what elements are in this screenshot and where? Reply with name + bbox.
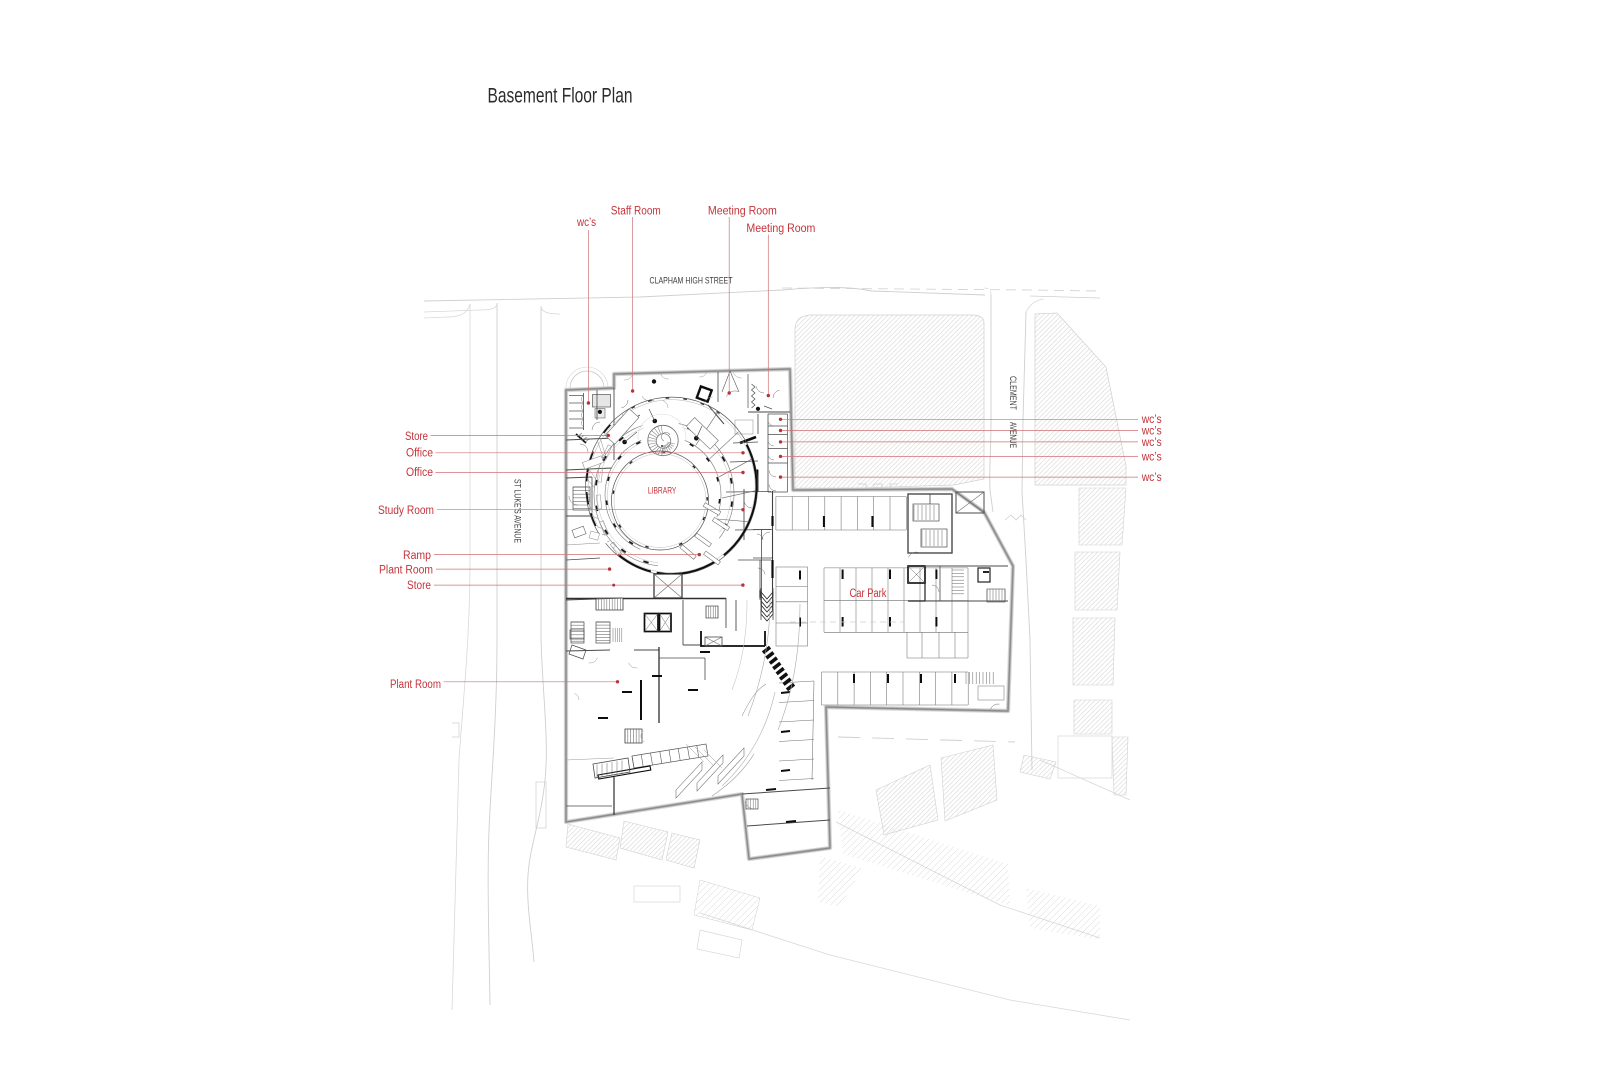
svg-text:Staff Room: Staff Room bbox=[611, 206, 661, 218]
svg-text:Office: Office bbox=[406, 448, 433, 460]
svg-text:Store: Store bbox=[407, 580, 431, 592]
svg-text:Study Room: Study Room bbox=[378, 505, 434, 517]
svg-text:Store: Store bbox=[405, 431, 428, 443]
svg-text:CLAPHAM HIGH STREET: CLAPHAM HIGH STREET bbox=[650, 275, 733, 286]
svg-text:CLEMENT: CLEMENT bbox=[1007, 376, 1018, 410]
svg-text:Plant Room: Plant Room bbox=[379, 565, 433, 577]
svg-text:ST LUKE’S AVENUE: ST LUKE’S AVENUE bbox=[512, 479, 523, 543]
svg-text:Basement Floor Plan: Basement Floor Plan bbox=[488, 83, 633, 107]
svg-text:wc’s: wc’s bbox=[1141, 425, 1162, 437]
svg-text:LIBRARY: LIBRARY bbox=[648, 485, 677, 496]
svg-text:wc’s: wc’s bbox=[1141, 451, 1162, 463]
svg-text:Office: Office bbox=[406, 467, 433, 479]
svg-text:wc’s: wc’s bbox=[1141, 472, 1162, 484]
svg-text:Meeting Room: Meeting Room bbox=[708, 206, 777, 218]
svg-text:Plant Room: Plant Room bbox=[390, 679, 441, 691]
svg-text:wc’s: wc’s bbox=[1141, 437, 1162, 449]
svg-text:Meeting Room: Meeting Room bbox=[746, 223, 815, 235]
svg-text:Car Park: Car Park bbox=[850, 588, 887, 600]
svg-text:Ramp: Ramp bbox=[403, 550, 431, 562]
svg-text:wc’s: wc’s bbox=[576, 217, 596, 229]
svg-text:AVENUE: AVENUE bbox=[1007, 422, 1018, 448]
svg-text:wc’s: wc’s bbox=[1141, 414, 1162, 426]
